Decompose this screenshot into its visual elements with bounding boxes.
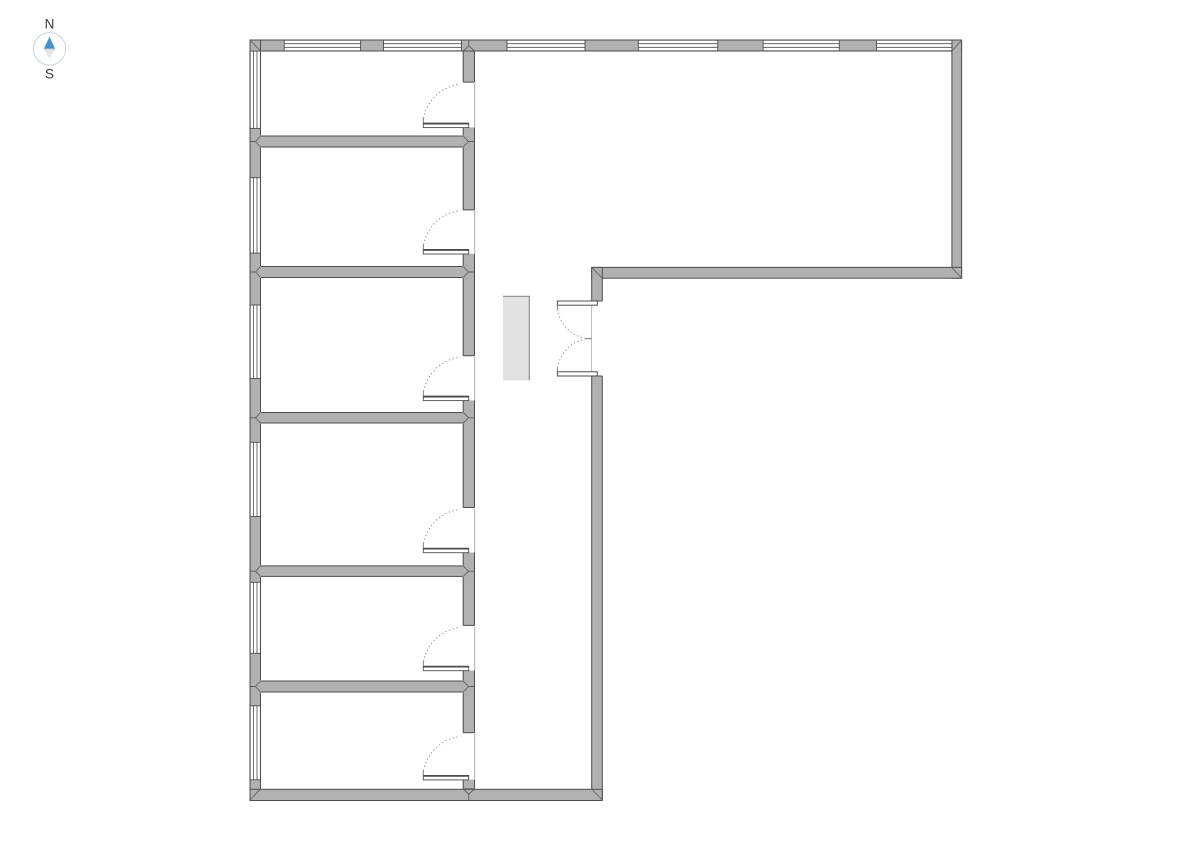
svg-text:N: N [45, 17, 55, 32]
svg-text:S: S [45, 67, 54, 82]
